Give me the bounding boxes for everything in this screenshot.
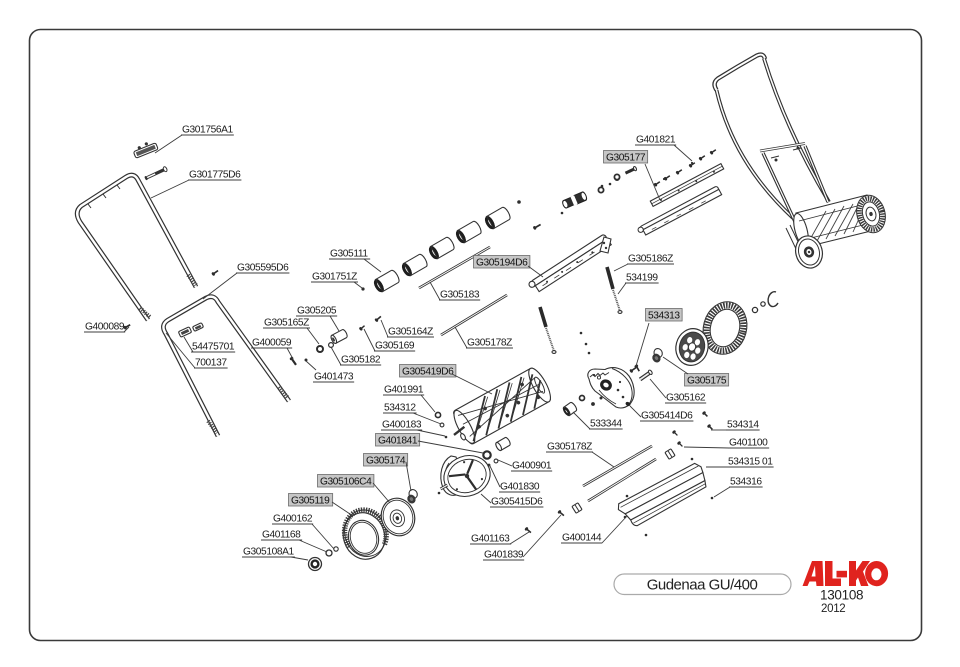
svg-text:G301751Z: G301751Z [312, 272, 357, 283]
svg-text:G305194D6: G305194D6 [476, 258, 528, 269]
svg-text:G305415D6: G305415D6 [491, 497, 543, 508]
svg-text:G400144: G400144 [562, 533, 602, 544]
svg-text:G401841: G401841 [378, 436, 418, 447]
svg-text:130108: 130108 [820, 588, 863, 603]
svg-text:G401100: G401100 [729, 438, 768, 449]
svg-text:G305178Z: G305178Z [547, 442, 592, 453]
svg-text:G305165Z: G305165Z [264, 318, 309, 329]
svg-text:G401830: G401830 [500, 482, 540, 493]
svg-text:G305595D6: G305595D6 [237, 263, 289, 274]
svg-text:G401839: G401839 [484, 550, 524, 561]
svg-text:G305162: G305162 [666, 393, 706, 404]
svg-text:534316: 534316 [730, 477, 762, 488]
svg-text:G400059: G400059 [252, 338, 292, 349]
svg-text:G305178Z: G305178Z [467, 338, 512, 349]
svg-text:G400089: G400089 [85, 322, 125, 333]
svg-text:G401473: G401473 [314, 372, 354, 383]
svg-text:G301756A1: G301756A1 [182, 125, 234, 136]
svg-text:G400901: G400901 [512, 461, 552, 472]
svg-text:534314: 534314 [727, 420, 759, 431]
svg-text:G401163: G401163 [471, 534, 510, 545]
svg-text:G305182: G305182 [341, 355, 381, 366]
svg-text:G305175: G305175 [687, 376, 727, 387]
svg-text:G401821: G401821 [636, 135, 676, 146]
svg-text:G305174: G305174 [366, 456, 406, 467]
svg-text:G305108A1: G305108A1 [243, 547, 295, 558]
svg-text:2012: 2012 [821, 603, 845, 615]
svg-text:G401168: G401168 [262, 530, 301, 541]
svg-text:Gudenaa GU/400: Gudenaa GU/400 [647, 577, 758, 594]
svg-text:G305177: G305177 [606, 153, 646, 164]
svg-text:G305205: G305205 [297, 306, 337, 317]
svg-text:700137: 700137 [195, 358, 227, 369]
svg-text:G305106C4: G305106C4 [320, 477, 372, 488]
svg-text:G305164Z: G305164Z [388, 327, 433, 338]
svg-text:G301775D6: G301775D6 [189, 170, 241, 181]
svg-text:G305111: G305111 [330, 249, 368, 260]
svg-text:534199: 534199 [626, 273, 658, 284]
svg-text:534315 01: 534315 01 [728, 457, 773, 468]
svg-text:534312: 534312 [384, 403, 416, 414]
svg-text:G305414D6: G305414D6 [641, 411, 693, 422]
svg-text:534313: 534313 [648, 311, 680, 322]
svg-text:G305186Z: G305186Z [628, 254, 673, 265]
svg-text:G305119: G305119 [291, 496, 330, 507]
svg-text:G305169: G305169 [375, 341, 415, 352]
svg-text:533344: 533344 [590, 419, 622, 430]
svg-text:54475701: 54475701 [192, 342, 235, 353]
svg-text:G401991: G401991 [384, 385, 424, 396]
svg-text:G400162: G400162 [273, 514, 313, 525]
svg-text:G400183: G400183 [382, 420, 422, 431]
svg-text:G305183: G305183 [440, 290, 480, 301]
svg-text:G305419D6: G305419D6 [402, 367, 454, 378]
